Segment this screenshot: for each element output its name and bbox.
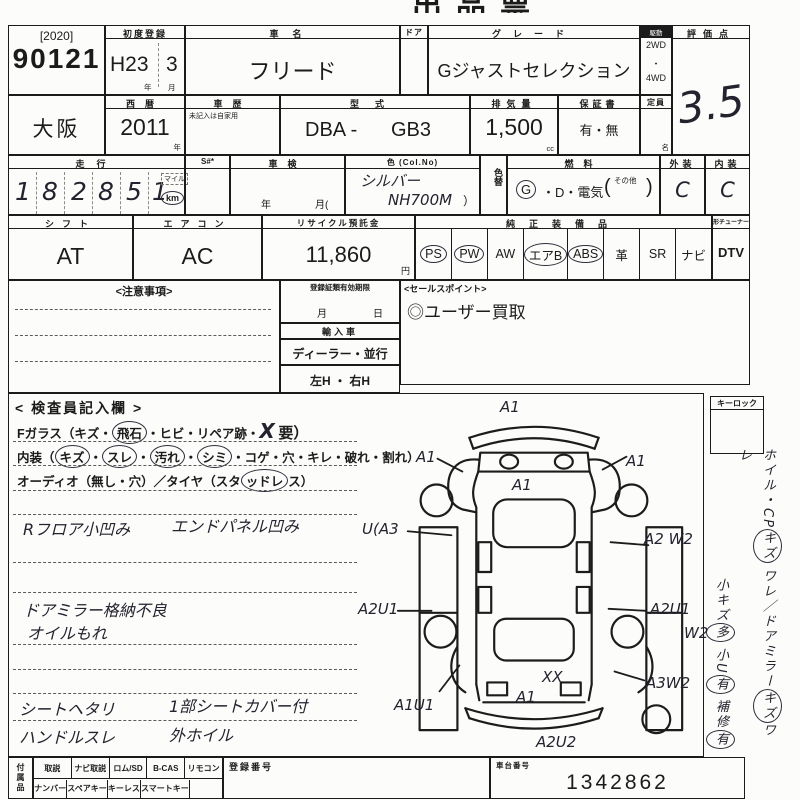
displacement-cell: 排気量 1,500 cc: [470, 95, 558, 155]
first-registration-cell: 初度登録 H23 3 年 月: [105, 25, 185, 95]
capacity-cell: 定員 名: [640, 95, 672, 155]
fuel-paren-close: ): [646, 176, 653, 199]
dealer-parallel-cell: ディーラー・並行: [280, 339, 400, 365]
registration-number-label: 登録番号: [229, 760, 273, 773]
acc-smart-key: スマートキー: [141, 780, 190, 799]
chassis-number-label: 車台番号: [496, 760, 530, 771]
equip-aw-label: AW: [496, 247, 516, 261]
side-note-many: 多: [706, 623, 735, 642]
door-cell: ドア: [400, 25, 428, 95]
inspector-line: [13, 490, 357, 491]
inspector-line: [13, 669, 357, 670]
equip-ps: PS: [416, 229, 452, 279]
reg-day-char: 日: [373, 305, 383, 320]
drive-type-cell: 駆動 2WD ・ 4WD: [640, 25, 672, 95]
acc-manual: 取説: [34, 758, 72, 778]
note-rfloor: Rフロア小凹み: [23, 516, 130, 540]
glass-x-mark: X: [259, 419, 274, 443]
acc-navi-manual: ナビ取説: [72, 758, 110, 778]
equip-airbag: エアB: [524, 229, 568, 279]
tuner-label: 形チューナー名: [713, 216, 749, 229]
auction-sheet: 出品票 [2020] 90121 初度登録 H23 3 年 月 車名 フリード …: [0, 0, 800, 800]
displacement-value: 1,500: [471, 114, 557, 141]
damage-annotation: A2U1: [358, 600, 398, 618]
glass-part: 要）: [278, 425, 308, 442]
shaken-year-char: 年: [261, 196, 271, 211]
mileage-unit-mile: マイル: [161, 173, 188, 185]
accessories-row2: ナンバー スペアキー キーレス スマートキー: [34, 780, 222, 799]
s-number-label: S#*: [186, 156, 229, 169]
keylock-cell: キーロック: [710, 396, 764, 454]
inspector-line: [13, 465, 357, 466]
equip-sr-label: SR: [649, 247, 666, 261]
auction-year: [2020]: [9, 29, 104, 43]
mileage-cell: 走行 1 8 2 8 5 1 マイル km: [8, 155, 185, 215]
equipment-label: 純正装備品: [416, 216, 711, 229]
color-cell: 色 (Col.No) シルバー NH700M ）: [345, 155, 480, 215]
drive-dot: ・: [641, 57, 671, 70]
inspection-box: < 検査員記入欄 > Fガラス（キズ・飛石・ヒビ・リペア跡・X 要） 内装（キズ…: [8, 393, 704, 757]
inspector-title: < 検査員記入欄 >: [15, 398, 143, 418]
damage-annotation: A2U2: [536, 733, 576, 751]
front-bumper-outline: [469, 427, 598, 438]
sales-point-title: <セールスポイント>: [404, 282, 487, 295]
acc-number-plate: ナンバー: [34, 780, 67, 799]
notice-title: <注意事項>: [9, 283, 279, 299]
year-cell: 西暦 2011 年: [105, 95, 185, 155]
note-doormirror: ドアミラー格納不良: [23, 597, 167, 621]
aircon-cell: エアコン AC: [133, 215, 262, 280]
interior-part: ・: [90, 451, 103, 465]
capacity-unit: 名: [662, 142, 670, 153]
damage-annotation: A1: [500, 398, 520, 416]
fuel-label: 燃料: [508, 156, 659, 169]
mileage-digit: 2: [71, 177, 87, 206]
side-note-part: 小U: [713, 642, 728, 675]
mileage-digit: 5: [126, 177, 142, 206]
equipment-row: PS PW AW エアB ABS 革 SR ナビ: [416, 229, 711, 279]
mileage-digit: 8: [42, 177, 58, 206]
warranty-label: 保証書: [559, 96, 639, 109]
equip-pw: PW: [452, 229, 488, 279]
interior-part: ・: [137, 451, 150, 465]
side-note-part: ホイル・CP: [760, 448, 775, 529]
damage-annotation: A2 W2: [644, 530, 693, 548]
color-change-cell: 色替: [480, 155, 507, 215]
seireki-label: 西暦: [106, 96, 184, 109]
model-label: 型式: [281, 96, 469, 109]
color-label: 色 (Col.No): [346, 156, 479, 169]
accessories-grid: 取説 ナビ取説 ロム/SD B-CAS リモコン ナンバー スペアキー キーレス…: [33, 757, 223, 799]
first-registration-month: 3: [166, 53, 178, 77]
acc-rom-sd: ロム/SD: [110, 758, 148, 778]
acc-keyless: キーレス: [108, 780, 141, 799]
color-change-label: 色替: [481, 168, 506, 186]
damage-annotation: A2U1: [650, 600, 690, 618]
history-cell: 車歴 未記入は自家用: [185, 95, 280, 155]
seireki-year-char: 年: [174, 142, 182, 153]
fuel-cell: 燃料 G ・D・電気 ( その他 ): [507, 155, 660, 215]
studless-mark: ッドレ: [241, 469, 289, 492]
first-registration-label: 初度登録: [106, 26, 184, 39]
side-note-part: ワレ／ドアミラー: [760, 563, 775, 689]
inspector-line: [13, 644, 357, 645]
auction-number: 90121: [9, 43, 104, 75]
color-paren-close: ）: [463, 192, 475, 209]
damage-annotation: A3W2: [646, 674, 690, 692]
sales-point-text: ◎ユーザー買取: [407, 298, 526, 323]
equip-leather-label: 革: [615, 245, 628, 264]
recycle-value: 11,860: [263, 242, 414, 268]
chassis-number: 1342862: [491, 771, 744, 795]
fuel-paren-open: (: [604, 176, 611, 199]
s-number-cell: S#*: [185, 155, 230, 215]
warranty-cell: 保証書 有・無: [558, 95, 640, 155]
acc-bcas: B-CAS: [147, 758, 185, 778]
reg-month-char: 月: [317, 305, 327, 320]
chassis-number-cell: 車台番号 1342862: [490, 757, 745, 799]
accessories-label: 付属品: [9, 758, 32, 798]
grade-cell: グレード Gジャストセレクション: [428, 25, 640, 95]
inspector-line: [13, 562, 357, 563]
side-note-kizu: キズ: [753, 689, 782, 723]
damage-annotation: A1: [512, 476, 532, 494]
dtv-value: DTV: [713, 245, 749, 260]
auction-number-cell: [2020] 90121: [8, 25, 105, 95]
drive-4wd: 4WD: [641, 73, 671, 83]
warranty-value: 有・無: [559, 120, 639, 139]
displacement-label: 排気量: [471, 96, 557, 109]
mileage-digit: 8: [98, 177, 114, 206]
fuel-other-label: その他: [614, 175, 637, 186]
glass-part: ・ヒビ・リペア跡・: [147, 427, 260, 441]
audio-part: オーディオ（無し・穴）／タイヤ（スタ: [17, 475, 241, 489]
history-label: 車歴: [186, 96, 279, 109]
shaken-label: 車検: [231, 156, 344, 169]
acc-spare-key: スペアキー: [67, 780, 107, 799]
recycle-label: リサイクル預託金: [263, 216, 414, 229]
damage-annotation: A1: [626, 452, 646, 470]
note-wheel: 外ホイル: [169, 722, 233, 746]
equip-leather: 革: [604, 229, 640, 279]
equip-sr: SR: [640, 229, 676, 279]
shaken-month-char: 月(: [315, 196, 328, 211]
side-note-part: 小キズ: [713, 578, 728, 623]
equipment-cell: 純正装備品 PS PW AW エアB ABS 革 SR ナビ: [415, 215, 712, 280]
notice-box: <注意事項>: [8, 280, 280, 393]
digit-divider: [120, 172, 121, 214]
drive-2wd: 2WD: [641, 40, 671, 50]
equip-airbag-label: エアB: [524, 243, 567, 266]
dealer-parallel-label: ディーラー・並行: [281, 345, 399, 362]
damage-annotation: A1U1: [394, 696, 434, 714]
equip-abs: ABS: [568, 229, 604, 279]
note-endpanel: エンドパネル凹み: [171, 513, 299, 537]
damage-annotation: W2: [684, 624, 708, 642]
exterior-grade: C: [661, 178, 704, 202]
displacement-unit: cc: [547, 144, 555, 153]
registration-number-cell: 登録番号: [223, 757, 490, 799]
interior-part: ・: [185, 451, 198, 465]
dtv-cell: 形チューナー名 DTV: [712, 215, 750, 280]
first-reg-month-char: 月: [168, 82, 176, 93]
digit-divider: [148, 172, 149, 214]
capacity-label: 定員: [641, 96, 671, 109]
shift-label: シフト: [9, 216, 132, 229]
interior-part: 内装（: [17, 451, 55, 465]
accessories-row1: 取説 ナビ取説 ロム/SD B-CAS リモコン: [34, 758, 222, 779]
grade-value: Gジャストセレクション: [429, 57, 639, 83]
inspector-line: [13, 720, 357, 721]
accessories-label-cell: 付属品: [8, 757, 33, 799]
inspector-line: [13, 592, 357, 593]
seireki-value: 2011: [106, 114, 184, 141]
first-registration-era: H23: [110, 53, 149, 77]
color-name-handwritten: シルバー: [360, 170, 420, 191]
interior-label: 内装: [706, 156, 749, 169]
notice-line: [15, 309, 271, 310]
equip-pw-label: PW: [454, 245, 484, 263]
mileage-unit-km: km: [161, 191, 184, 205]
car-name-cell: 車名 フリード: [185, 25, 400, 95]
equip-ps-label: PS: [420, 245, 447, 263]
shift-cell: シフト AT: [8, 215, 133, 280]
glass-part: Fガラス（キズ・: [17, 427, 112, 441]
side-note-wheel-mirror: ホイル・CPキズ ワレ／ドアミラーキズワレ: [734, 448, 782, 748]
notice-line: [15, 335, 271, 336]
handle-side-label: 左H ・ 右H: [281, 372, 399, 389]
exterior-grade-cell: 外装 C: [660, 155, 705, 215]
keylock-label: キーロック: [711, 397, 763, 410]
inspector-line: [13, 441, 357, 442]
drive-label: 駆動: [641, 26, 671, 38]
equip-aw: AW: [488, 229, 524, 279]
fuel-gasoline: G: [516, 180, 536, 199]
aircon-value: AC: [134, 243, 261, 270]
damage-annotation: U(A3: [362, 520, 399, 538]
audio-tire-line: オーディオ（無し・穴）／タイヤ（スタッドレス）: [17, 469, 313, 492]
interior-grade: C: [706, 178, 749, 202]
model-prefix: DBA -: [305, 119, 357, 142]
color-code-handwritten: NH700M: [388, 191, 452, 209]
digit-divider: [36, 172, 37, 214]
aircon-label: エアコン: [134, 216, 261, 229]
digit-divider: [64, 172, 65, 214]
car-name: フリード: [186, 54, 399, 86]
fuel-options: ・D・電気: [542, 182, 603, 201]
side-note-part: 補修: [713, 694, 728, 730]
shaken-cell: 車検 年 月(: [230, 155, 345, 215]
side-note-present: 有: [706, 730, 735, 749]
handle-side-cell: 左H ・ 右H: [280, 365, 400, 393]
acc-remote: リモコン: [185, 758, 222, 778]
exterior-label: 外装: [661, 156, 704, 169]
equip-navi-label: ナビ: [681, 245, 706, 264]
region-cell: 大阪: [8, 95, 105, 155]
acc-empty: [190, 780, 222, 799]
mileage-label: 走行: [9, 156, 184, 169]
note-seatwear: シートヘタリ: [19, 696, 115, 720]
recycle-yen: 円: [401, 264, 410, 277]
side-note-kizu: キズ: [753, 529, 782, 563]
damage-annotation: XX: [542, 668, 563, 686]
model-code-cell: 型式 DBA - GB3: [280, 95, 470, 155]
equip-abs-label: ABS: [568, 245, 603, 263]
sheet-title-clipped: 出品票: [240, 0, 550, 13]
interior-grade-cell: 内装 C: [705, 155, 750, 215]
score-label: 評価点: [673, 26, 749, 39]
registration-validity-cell: 登録証類有効期限 月 日: [280, 280, 400, 323]
model-value: GB3: [391, 119, 431, 142]
import-cell: 輸入車: [280, 323, 400, 339]
score-value: 3.5: [670, 75, 752, 134]
region: 大阪: [9, 113, 104, 143]
audio-part: ス）: [288, 475, 313, 489]
first-reg-divider: [158, 43, 159, 87]
side-note-present: 有: [706, 675, 735, 694]
door-label: ドア: [401, 26, 427, 39]
equip-navi: ナビ: [676, 229, 711, 279]
note-handlewear: ハンドルスレ: [19, 724, 115, 748]
score-cell: 評価点 3.5: [672, 25, 750, 155]
note-oilleak: オイルもれ: [27, 620, 107, 644]
note-seatcover: 1部シートカバー付: [169, 693, 307, 717]
history-note: 未記入は自家用: [189, 111, 238, 121]
registration-validity-label: 登録証類有効期限: [281, 282, 399, 293]
notice-line: [15, 361, 271, 362]
sheet-title-text: 出品票: [412, 0, 544, 13]
import-label: 輸入車: [281, 325, 399, 338]
sales-point-box: <セールスポイント> ◎ユーザー買取: [400, 280, 750, 385]
shift-value: AT: [9, 243, 132, 270]
side-note-small-scratches: 小キズ多 小U有 補修有: [706, 578, 735, 763]
car-name-label: 車名: [186, 26, 399, 39]
damage-annotation: A1: [416, 448, 436, 466]
mileage-digit: 1: [15, 177, 31, 206]
damage-annotation: A1: [516, 688, 536, 706]
grade-label: グレード: [429, 26, 639, 39]
digit-divider: [92, 172, 93, 214]
recycle-deposit-cell: リサイクル預託金 11,860 円: [262, 215, 415, 280]
first-reg-year-char: 年: [144, 82, 152, 93]
